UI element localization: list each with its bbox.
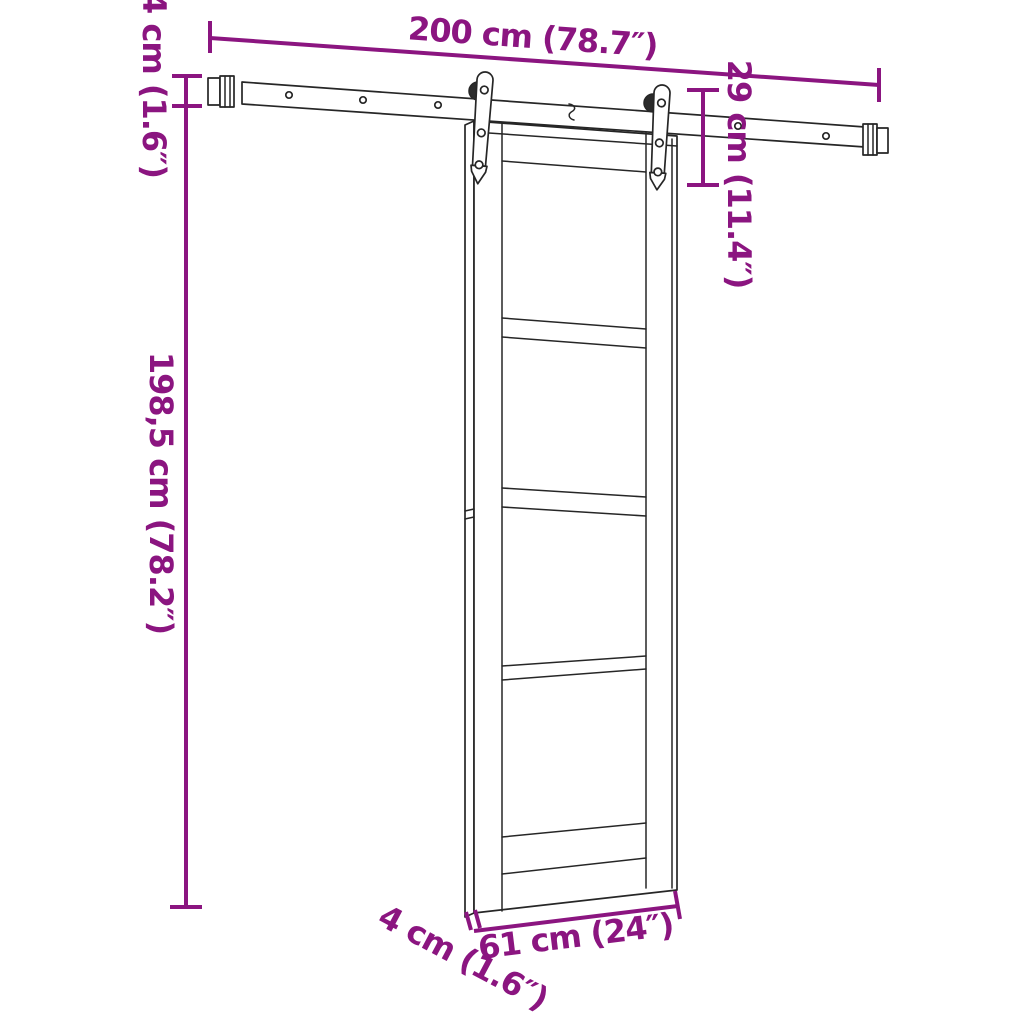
rail-left-endcap bbox=[208, 76, 234, 107]
dim-rail-height: 4 cm (1.6″) bbox=[135, 0, 202, 178]
rail-left-endcap-ring bbox=[220, 76, 234, 107]
rail-hole bbox=[823, 133, 829, 139]
right-hanger-bolt-bottom bbox=[654, 168, 662, 176]
rail-hole bbox=[360, 97, 366, 103]
dim-hanger-drop-label: 29 cm (11.4″) bbox=[720, 60, 758, 289]
dim-rail-height-label: 4 cm (1.6″) bbox=[135, 0, 173, 178]
right-hanger-bolt-top bbox=[657, 99, 665, 107]
rail-hole bbox=[286, 92, 292, 98]
left-hanger-bolt-mid bbox=[477, 129, 485, 137]
right-hanger-bolt-mid bbox=[655, 139, 663, 147]
dim-door-width-tick-right bbox=[675, 891, 680, 919]
rail-hole bbox=[435, 102, 441, 108]
rail-right-endcap bbox=[863, 124, 888, 155]
dim-door-height: 198,5 cm (78.2″) bbox=[142, 76, 202, 907]
rail-left-endcap-outer bbox=[208, 78, 220, 105]
dimension-diagram: 200 cm (78.7″) 4 cm (1.6″) 198,5 cm (78.… bbox=[0, 0, 1024, 1024]
diagram-canvas: 200 cm (78.7″) 4 cm (1.6″) 198,5 cm (78.… bbox=[0, 0, 1024, 1024]
dim-door-height-label: 198,5 cm (78.2″) bbox=[142, 352, 180, 634]
left-hanger-bolt-top bbox=[480, 86, 488, 94]
door bbox=[465, 121, 677, 917]
rail-right-endcap-ring bbox=[863, 124, 877, 155]
rail-right-endcap-outer bbox=[877, 128, 888, 153]
dim-hanger-drop: 29 cm (11.4″) bbox=[687, 60, 758, 289]
left-hanger-bolt-bottom bbox=[475, 161, 483, 169]
